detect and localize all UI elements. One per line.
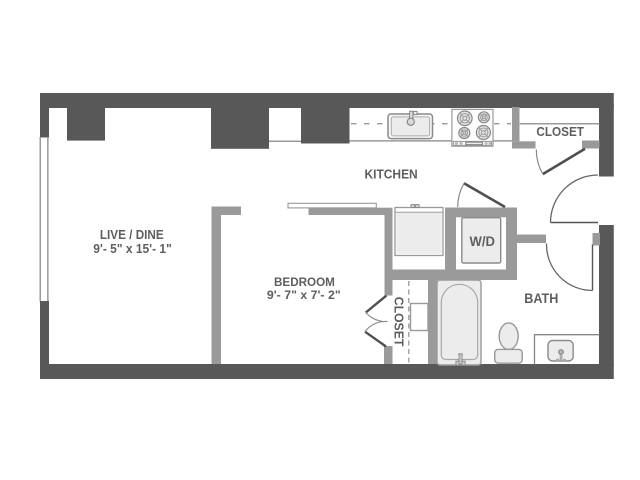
svg-text:BATH: BATH	[524, 290, 558, 306]
svg-text:KITCHEN: KITCHEN	[365, 166, 418, 181]
svg-text:W/D: W/D	[470, 234, 496, 249]
svg-text:9'- 5" x 15'- 1": 9'- 5" x 15'- 1"	[93, 241, 172, 256]
svg-text:9'- 7" x 7'- 2": 9'- 7" x 7'- 2"	[267, 288, 341, 302]
svg-text:CLOSET: CLOSET	[392, 297, 407, 347]
svg-text:LIVE / DINE: LIVE / DINE	[100, 227, 164, 242]
svg-text:CLOSET: CLOSET	[536, 125, 584, 139]
